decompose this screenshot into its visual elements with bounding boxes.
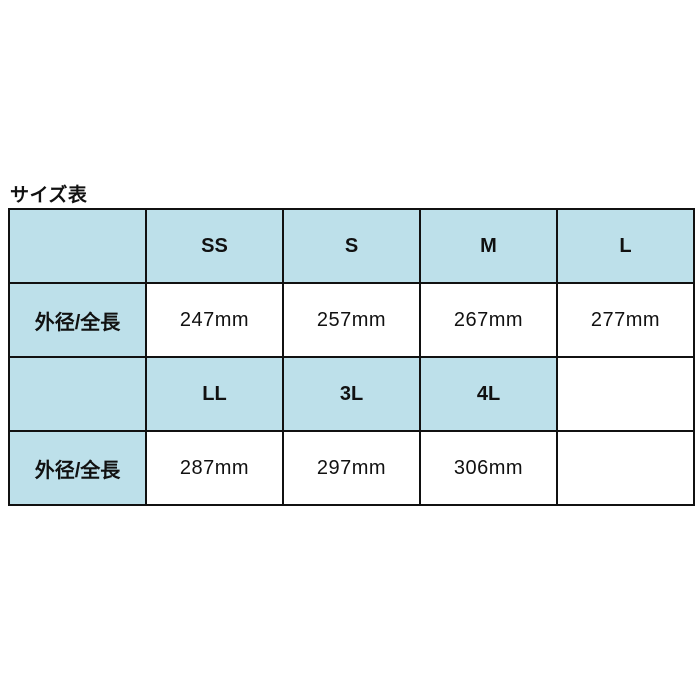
empty-spacer-cell (557, 357, 694, 431)
row-label-bottom: 外径/全長 (9, 431, 146, 505)
size-header-row-top: SS S M L (9, 209, 694, 283)
size-header-4l: 4L (420, 357, 557, 431)
value-4l: 306mm (420, 431, 557, 505)
page-title: サイズ表 (10, 180, 87, 207)
page: サイズ表 SS S M L 外径/全長 247mm 257mm 267mm 27… (0, 0, 700, 700)
row-label-top: 外径/全長 (9, 283, 146, 357)
corner-cell-top (9, 209, 146, 283)
value-ll: 287mm (146, 431, 283, 505)
size-header-ss: SS (146, 209, 283, 283)
value-3l: 297mm (283, 431, 420, 505)
value-ss: 247mm (146, 283, 283, 357)
empty-spacer-cell (557, 431, 694, 505)
value-l: 277mm (557, 283, 694, 357)
size-header-ll: LL (146, 357, 283, 431)
size-header-m: M (420, 209, 557, 283)
value-row-top: 外径/全長 247mm 257mm 267mm 277mm (9, 283, 694, 357)
value-m: 267mm (420, 283, 557, 357)
value-row-bottom: 外径/全長 287mm 297mm 306mm (9, 431, 694, 505)
size-table: SS S M L 外径/全長 247mm 257mm 267mm 277mm L… (8, 208, 695, 506)
size-header-s: S (283, 209, 420, 283)
value-s: 257mm (283, 283, 420, 357)
size-header-3l: 3L (283, 357, 420, 431)
size-header-row-bottom: LL 3L 4L (9, 357, 694, 431)
corner-cell-bottom (9, 357, 146, 431)
size-header-l: L (557, 209, 694, 283)
